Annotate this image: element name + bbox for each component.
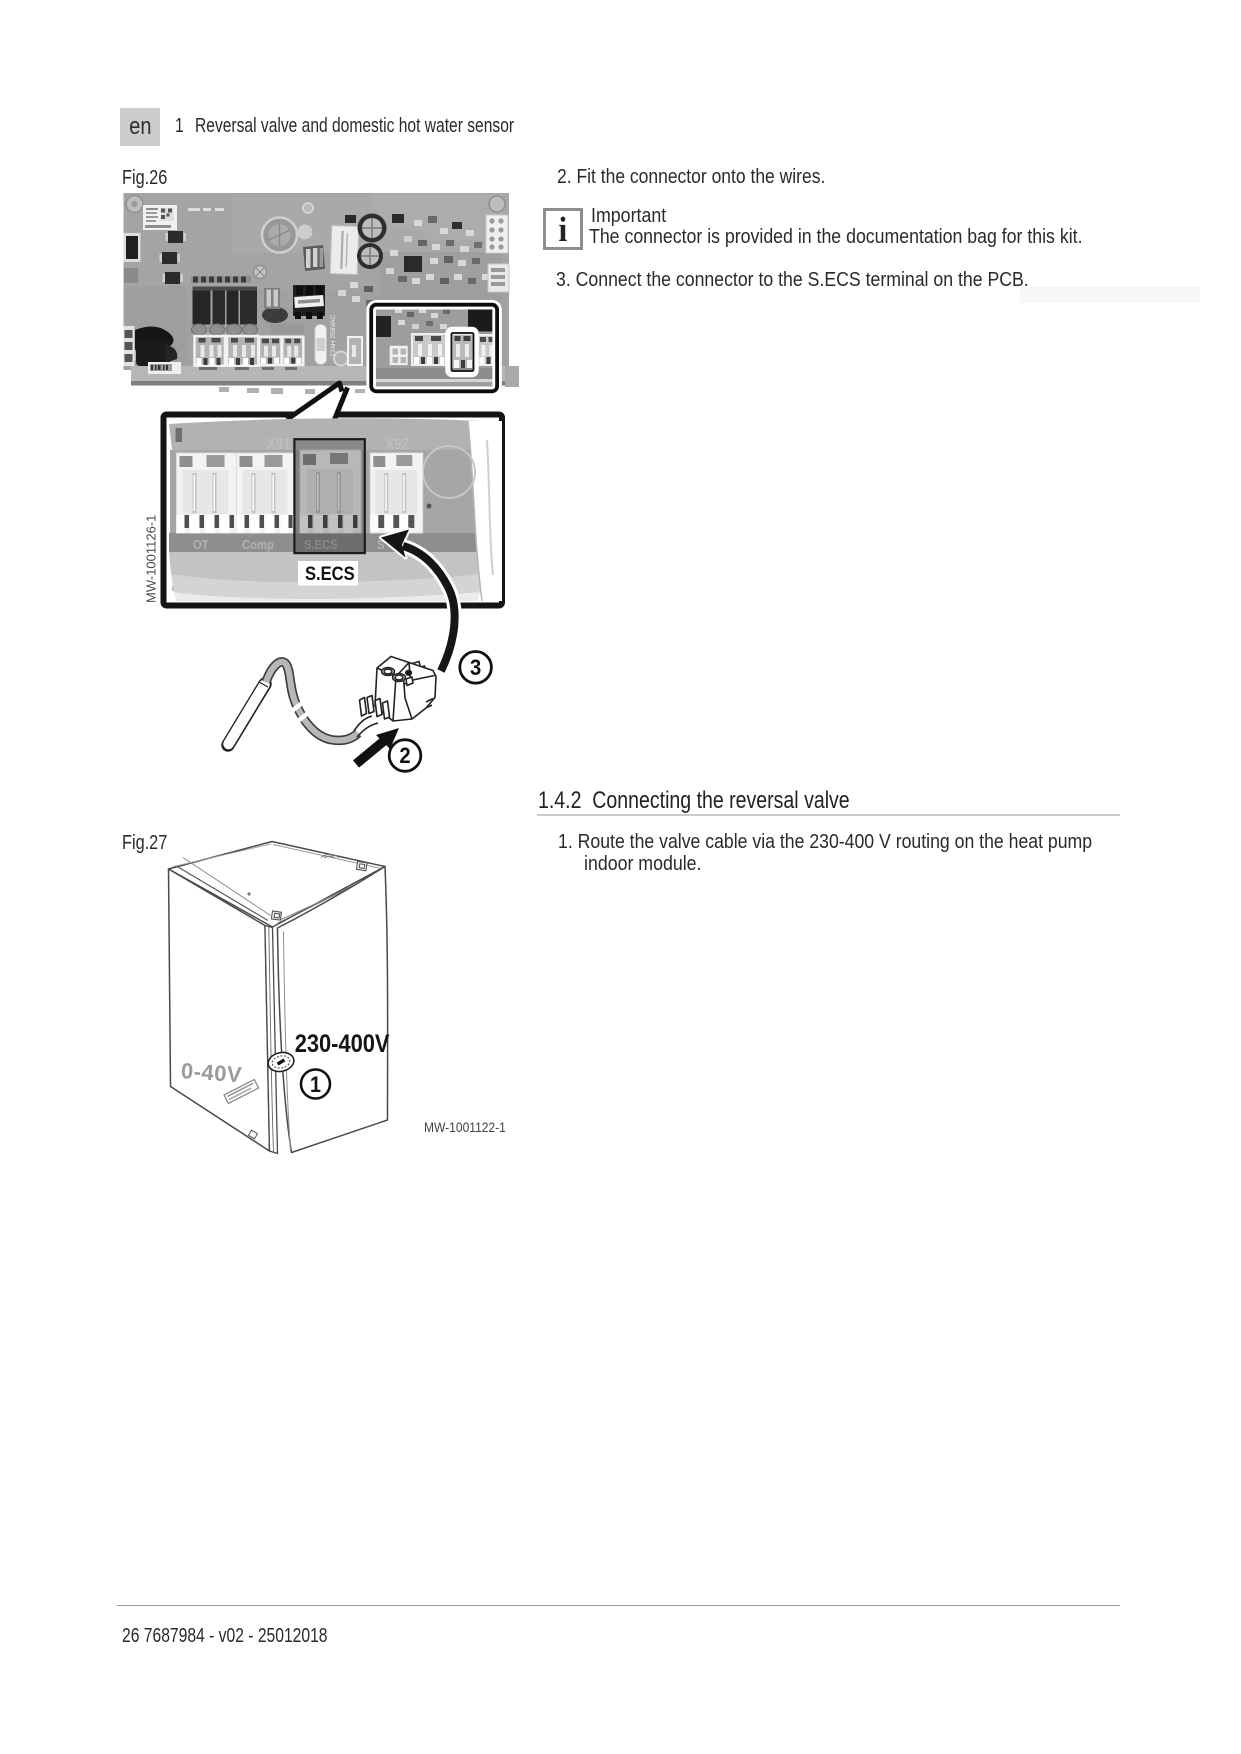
svg-text:S.ECS: S.ECS	[305, 563, 355, 585]
svg-text:2: 2	[399, 743, 410, 768]
svg-text:Comp: Comp	[242, 537, 274, 552]
svg-text:MW-1001126-1: MW-1001126-1	[144, 515, 159, 603]
svg-text:1: 1	[310, 1073, 321, 1097]
svg-text:0-40V: 0-40V	[180, 1058, 243, 1087]
svg-text:X92: X92	[386, 436, 409, 453]
svg-text:3: 3	[470, 655, 481, 680]
svg-text:OT: OT	[193, 537, 209, 552]
svg-text:T2AH 250VAC: T2AH 250VAC	[330, 315, 337, 357]
svg-text:230-400V: 230-400V	[295, 1030, 390, 1058]
svg-text:X91: X91	[267, 436, 290, 453]
